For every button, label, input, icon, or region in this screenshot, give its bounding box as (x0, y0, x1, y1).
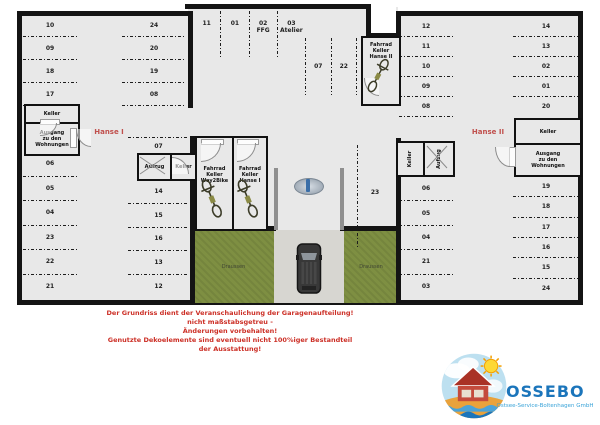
parking-space-20: 20 (513, 97, 579, 116)
parking-space-23: 23 (23, 226, 77, 250)
parking-space-13: 13 (513, 37, 579, 56)
disclaimer-line: Der Grundriss dient der Veranschaulichun… (75, 309, 385, 318)
parking-space-03: 03 (399, 275, 453, 298)
wall (17, 11, 22, 305)
parking-space-07: 07 (306, 38, 331, 95)
parking-space-18: 18 (513, 197, 579, 216)
company-logo-subtitle: Ostsee-Service-Boltenhagen GmbH (492, 403, 598, 409)
parking-space-19: 19 (122, 60, 186, 82)
parking-space-15: 15 (128, 204, 189, 227)
parking-space-16: 16 (513, 238, 579, 257)
parking-space-09: 09 (23, 37, 77, 59)
parking-space-20: 20 (122, 37, 186, 59)
space-divider (305, 38, 306, 95)
parking-space-22: 22 (332, 38, 357, 95)
parking-space-21: 21 (399, 250, 453, 273)
hanse2-top-slots: 0722 (306, 38, 357, 95)
parking-space-12: 12 (399, 17, 453, 36)
garage-floor-plan: 10091817 24201908 060504232221 141516131… (0, 0, 600, 425)
company-logo-name: OSSEBO (506, 382, 596, 400)
parking-space-23-hanse2: 23 (360, 186, 390, 198)
pillar-core (306, 179, 310, 192)
space-divider (122, 105, 186, 106)
hanse2-column-f: 1413020120 (513, 17, 579, 116)
parking-space-02: 02 (513, 57, 579, 76)
disclaimer-line: der Ausstattung! (75, 345, 385, 354)
parking-space-11: 11 (193, 11, 220, 59)
parking-space-24: 24 (513, 279, 579, 298)
parking-space-08: 08 (122, 83, 186, 105)
wall (188, 11, 193, 108)
parking-space-10: 10 (399, 57, 453, 76)
parking-space-04: 04 (23, 201, 77, 225)
parking-space-09: 09 (399, 77, 453, 96)
hanse1-column-d: 1415161312 (128, 180, 189, 298)
wall (396, 300, 583, 305)
parking-space-01: 01 (513, 77, 579, 96)
parking-space-07-hanse1: 07 (128, 140, 189, 153)
parking-space-01: 01 (221, 11, 248, 59)
parking-space-14: 14 (128, 180, 189, 203)
hanse1-column-b: 24201908 (122, 14, 186, 106)
hanse1-column-a: 10091817 (23, 14, 77, 106)
wall (340, 226, 398, 231)
space-divider (356, 38, 357, 95)
room-label: Keller (408, 151, 414, 167)
company-logo-icon (436, 348, 512, 424)
room-keller-right-hanse2: Keller (514, 118, 582, 145)
entrance-post-left (274, 168, 278, 230)
elevator-x-icon (139, 156, 166, 175)
label-hanse2: Hanse II (458, 126, 518, 138)
parking-space-11: 11 (399, 37, 453, 56)
space-divider (357, 145, 358, 248)
wall (396, 11, 583, 16)
parking-space-17: 17 (513, 218, 579, 237)
label-draussen-right: Draussen (344, 262, 398, 272)
parking-space-21: 21 (23, 275, 77, 299)
parking-space-13: 13 (128, 251, 189, 274)
parking-space-14: 14 (513, 17, 579, 36)
parking-space-05: 05 (399, 201, 453, 224)
label-hanse1: Hanse I (80, 126, 138, 138)
parking-space-22: 22 (23, 250, 77, 274)
parking-space-08: 08 (399, 97, 453, 116)
parking-space-05: 05 (23, 177, 77, 201)
parking-space-17: 17 (23, 83, 77, 105)
room-ausgang-hanse2: Ausgang zu den Wohnungen (514, 143, 582, 177)
hanse2-column-e: 1211100908 (399, 17, 453, 117)
disclaimer-text: Der Grundriss dient der Veranschaulichun… (75, 309, 385, 354)
parking-space-02: 02 FFG (250, 11, 277, 59)
parking-space-15: 15 (513, 258, 579, 277)
parking-space-24: 24 (122, 14, 186, 36)
parking-space-10: 10 (23, 14, 77, 36)
wall (17, 300, 193, 305)
entrance-post-right (340, 168, 344, 230)
disclaimer-line: Genutzte Dekoelemente sind eventuell nic… (75, 336, 385, 345)
disclaimer-line: nicht maßstabsgetreu - (75, 318, 385, 327)
parking-space-12: 12 (128, 275, 189, 298)
parking-space-18: 18 (23, 60, 77, 82)
door-leaf (509, 147, 516, 167)
wall (185, 4, 369, 9)
label-draussen-left: Draussen (193, 262, 274, 272)
hanse1-top-slots: 110102 FFG03 Atelier (193, 11, 305, 59)
room-keller-left-hanse2: Keller (396, 141, 425, 177)
hanse1-column-c: 060504232221 (23, 152, 77, 298)
disclaimer-line: Änderungen vorbehalten! (75, 327, 385, 336)
space-divider (399, 116, 453, 117)
hanse2-column-g: 0605042103 (399, 177, 453, 298)
parking-space-04: 04 (399, 226, 453, 249)
parking-space-19: 19 (513, 177, 579, 196)
wall (17, 11, 193, 16)
parking-space-06: 06 (399, 177, 453, 200)
parking-space-03: 03 Atelier (278, 11, 305, 59)
hanse2-column-h: 191817161524 (513, 177, 579, 298)
parking-space-16: 16 (128, 228, 189, 251)
car-icon (296, 242, 322, 295)
wall (193, 303, 398, 305)
elevator-x-icon (426, 145, 448, 169)
